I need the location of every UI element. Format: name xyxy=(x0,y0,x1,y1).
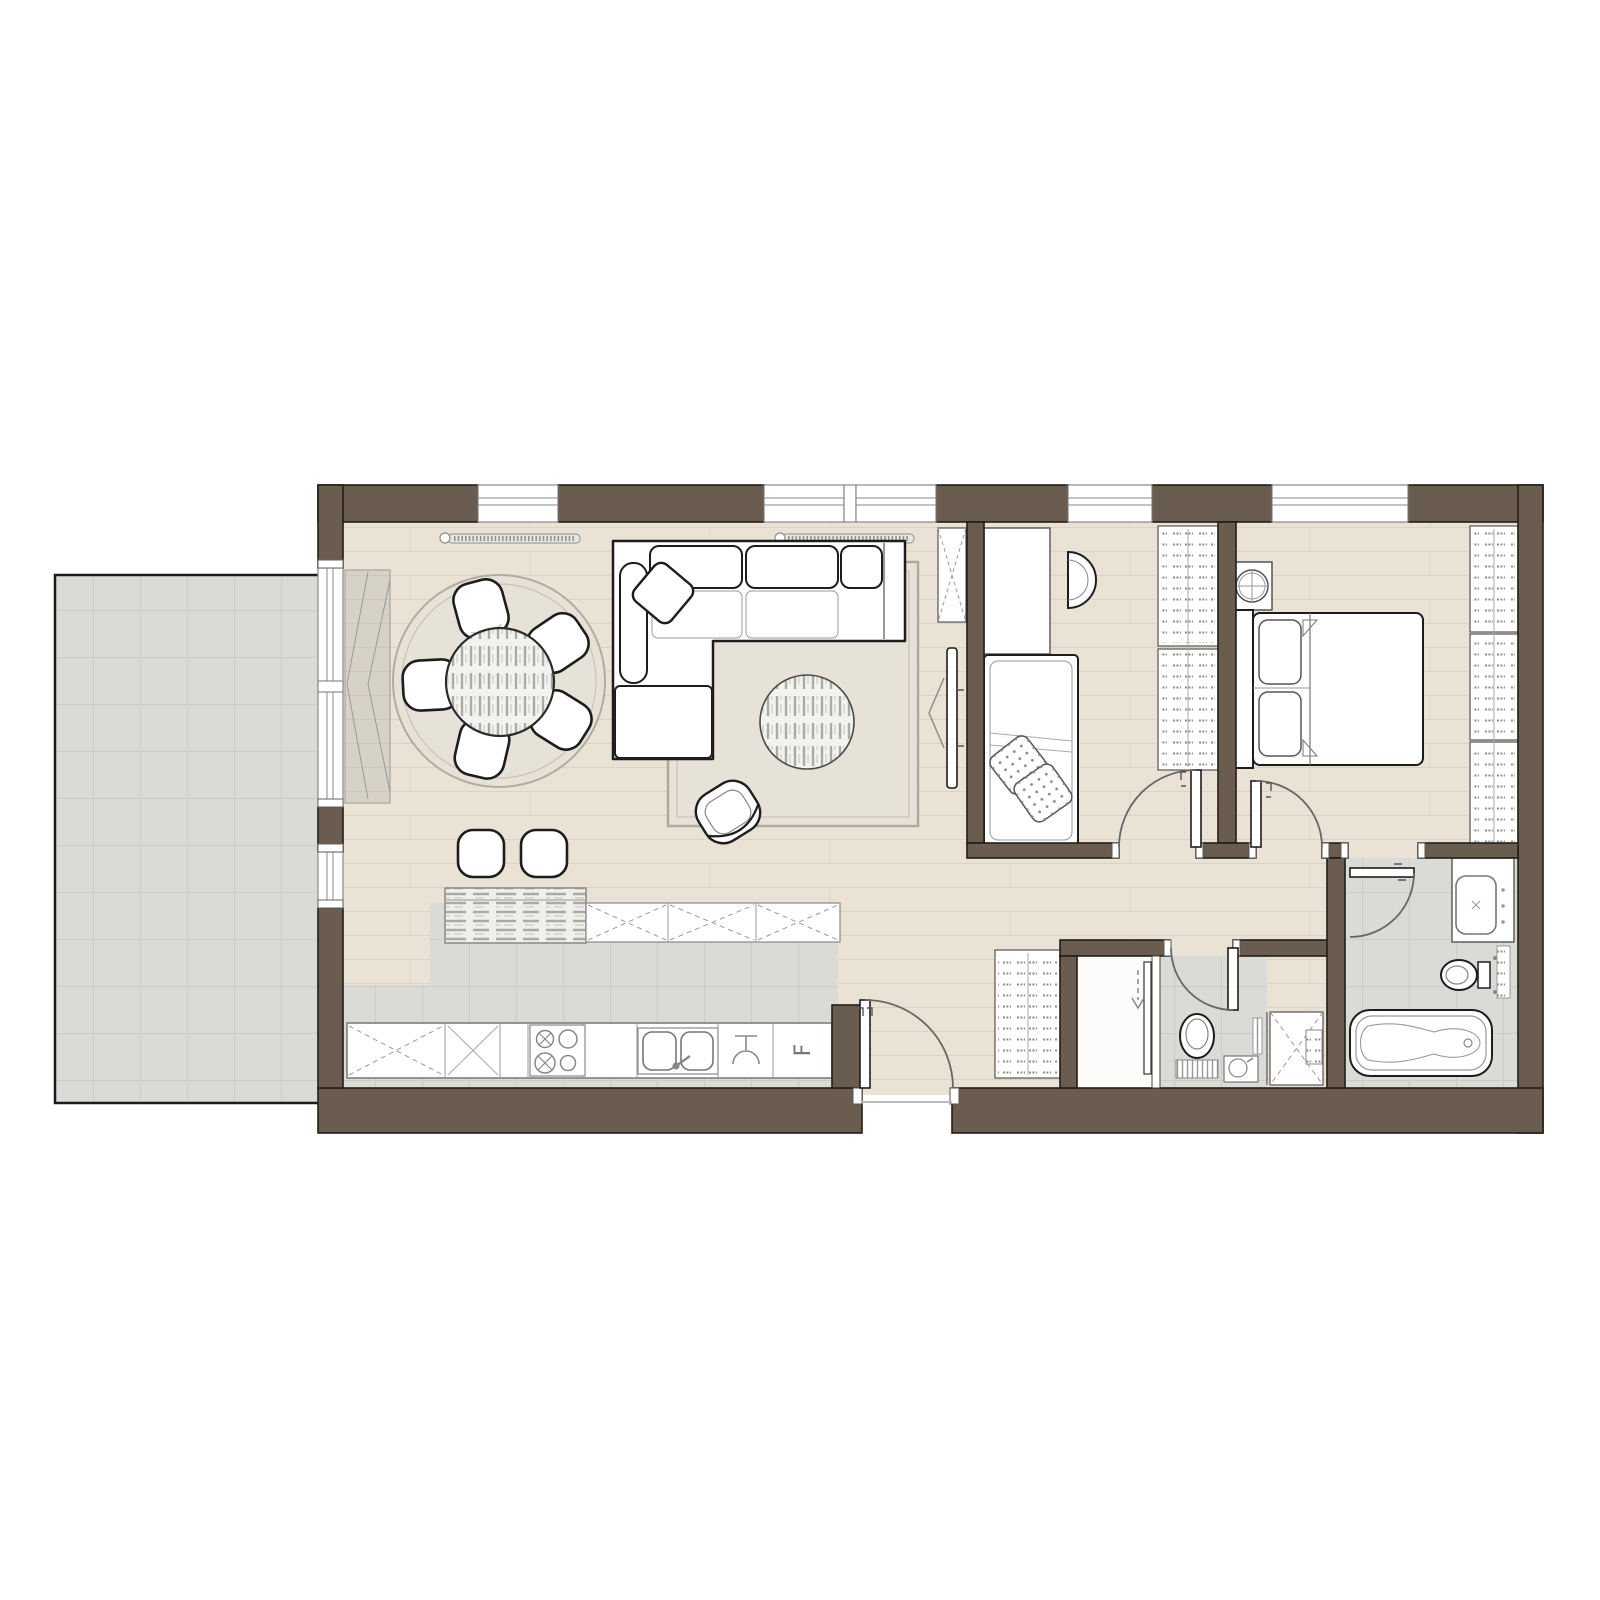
bar-stool-1 xyxy=(458,830,504,877)
hall-closet xyxy=(995,950,1061,1078)
bathtub xyxy=(1350,1010,1492,1076)
apartment-floor-plan: F xyxy=(0,0,1600,1600)
door-leaf xyxy=(1228,948,1238,1010)
door-jamb-left xyxy=(1164,940,1171,956)
balcony-floor xyxy=(55,575,332,1103)
bath-toilet xyxy=(1441,958,1495,992)
door-leaf xyxy=(1191,770,1201,847)
door-mullion xyxy=(318,681,343,692)
boiler-hatch xyxy=(1306,1030,1322,1064)
wall-storage-left xyxy=(1060,956,1077,1088)
cooktop xyxy=(530,1025,585,1076)
wc-basin xyxy=(1224,1056,1258,1082)
kids-bed xyxy=(984,655,1078,846)
wall-left-3 xyxy=(318,908,343,1088)
balcony-door xyxy=(318,568,343,807)
door-leaf xyxy=(1350,868,1414,877)
master-wardrobe xyxy=(1470,526,1518,845)
coffee-table xyxy=(760,675,854,769)
door-leaf xyxy=(860,1000,870,1088)
window-master xyxy=(1272,485,1408,522)
vanity-counter xyxy=(1452,858,1514,942)
tub-outline xyxy=(1350,1010,1492,1076)
window-frame xyxy=(1068,485,1152,522)
door-jamb-left xyxy=(1341,843,1348,858)
tv-panel xyxy=(947,648,957,788)
wall-left-1 xyxy=(318,485,343,568)
window-frame xyxy=(1272,485,1408,522)
scene-root: F xyxy=(55,485,1543,1133)
window-living-1 xyxy=(478,485,558,522)
sliding-glass-panels xyxy=(345,570,390,803)
wall-storage-top-2 xyxy=(1233,940,1330,956)
kitchen-sink xyxy=(638,1028,718,1074)
fridge-label: F xyxy=(791,1044,816,1057)
window-kids xyxy=(1068,485,1152,522)
wc-radiator xyxy=(1253,1018,1262,1054)
wall-bath-left xyxy=(1327,858,1345,1088)
master-bed xyxy=(1233,610,1423,768)
door-jamb-left xyxy=(1112,843,1119,858)
pillow-bottom xyxy=(1259,692,1301,756)
balcony-sliding-door-overlay xyxy=(345,570,390,803)
wall-hall-4 xyxy=(1418,843,1518,858)
pillow-top xyxy=(1259,620,1301,684)
sofa-seat-cushion-2 xyxy=(746,591,838,638)
window-frame xyxy=(764,485,844,522)
wall-top-2 xyxy=(558,485,764,522)
partition-storage-wc xyxy=(1152,956,1160,1088)
curtain-rail-end xyxy=(440,533,450,543)
window-mullion xyxy=(844,485,856,522)
wall-hall-1 xyxy=(967,843,1119,858)
window-frame xyxy=(856,485,936,522)
wall-hall-2 xyxy=(1196,843,1256,858)
bar-stool-2 xyxy=(521,830,567,877)
door-jamb-right xyxy=(1418,843,1425,858)
toilet-tank xyxy=(1478,962,1490,988)
table-lamp xyxy=(1236,570,1268,602)
wall-cap xyxy=(318,560,343,568)
wall-right xyxy=(1518,485,1543,1133)
bar-counter xyxy=(445,888,586,943)
wall-bottom-right xyxy=(952,1088,1543,1133)
cooktop-frame xyxy=(530,1025,585,1076)
curtain-rail-left xyxy=(440,533,580,543)
sink-faucet-base xyxy=(673,1063,680,1070)
wall-kids-master xyxy=(1218,522,1236,843)
wc-toilet xyxy=(1176,1014,1218,1078)
sofa-ottoman xyxy=(615,686,712,758)
floor-plan-page: F xyxy=(0,0,1600,1600)
towel-radiator xyxy=(1497,946,1510,998)
sofa-back-cushion-3 xyxy=(841,546,882,588)
window-living-3 xyxy=(856,485,936,522)
kids-desk xyxy=(984,528,1050,654)
wall-cap xyxy=(318,900,343,908)
kitchen-counter xyxy=(347,1023,832,1078)
window-living-2 xyxy=(764,485,844,522)
vanity xyxy=(1452,858,1514,942)
door-leaf xyxy=(1251,781,1261,847)
wall-top-3 xyxy=(936,485,1068,522)
window-frame xyxy=(478,485,558,522)
wall-cap xyxy=(318,844,343,852)
wall-bottom-left xyxy=(318,1088,862,1133)
door-jamb-left xyxy=(853,1088,862,1104)
utility-cabinet xyxy=(1270,1012,1323,1085)
wall-top-4 xyxy=(1152,485,1272,522)
sliding-door-panel xyxy=(1144,962,1151,1074)
sofa-back-cushion-2 xyxy=(746,546,838,588)
wall-kitchen-entry-stub xyxy=(832,1005,862,1088)
toilet-bowl xyxy=(1180,1014,1214,1058)
toilet-flush-unit xyxy=(1176,1060,1218,1078)
wall-cap xyxy=(318,799,343,807)
storage-floor xyxy=(1077,956,1152,1088)
wall-storage-top-1 xyxy=(1060,940,1170,956)
wall-living-kids xyxy=(967,522,984,843)
dining-table xyxy=(446,628,554,736)
door-jamb-right xyxy=(1322,843,1329,858)
